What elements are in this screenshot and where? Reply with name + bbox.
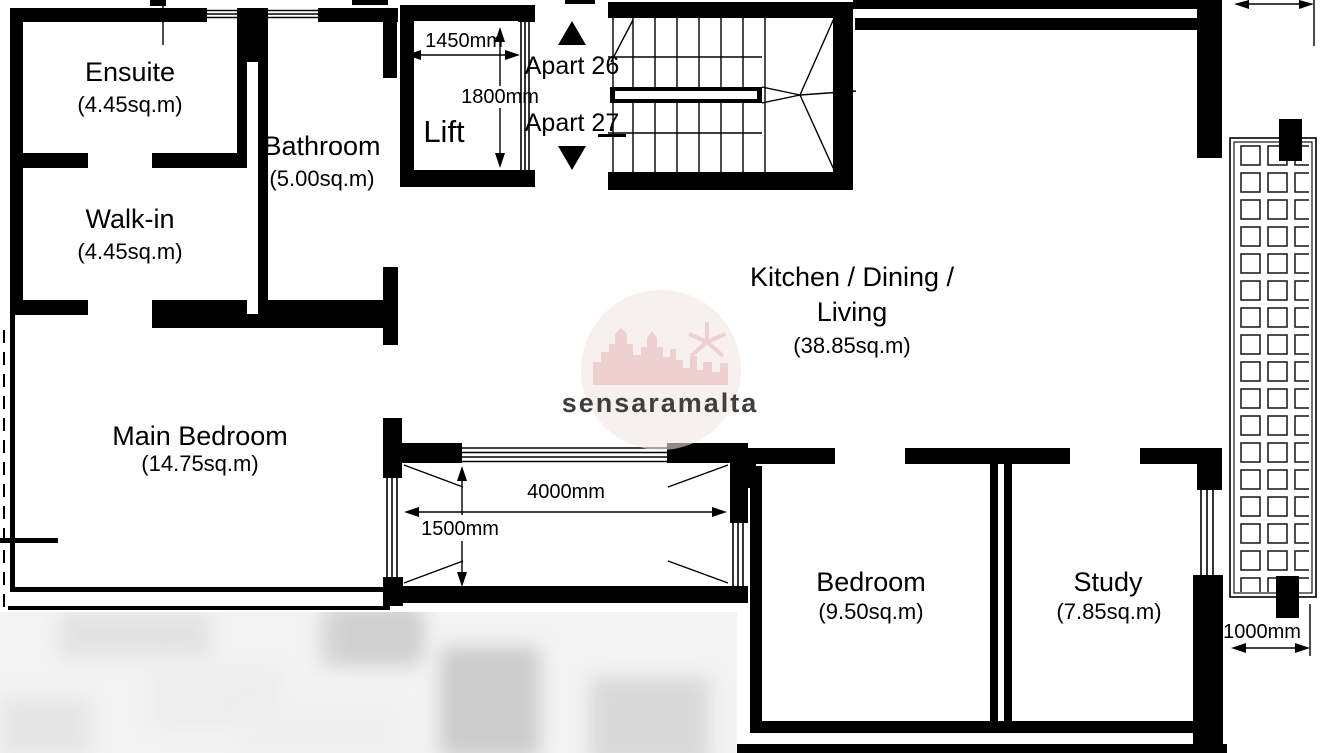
room-label-main-bedroom: Main Bedroom bbox=[112, 421, 288, 451]
window-top-left bbox=[207, 11, 237, 18]
balcony-post-bottom bbox=[1276, 576, 1299, 618]
room-area-bedroom: (9.50sq.m) bbox=[818, 599, 923, 624]
dimension-lift-width: 1450mm bbox=[406, 30, 520, 60]
study-right-window bbox=[1201, 490, 1213, 575]
balcony-post-top bbox=[1279, 119, 1302, 161]
stair-handrail bbox=[610, 87, 800, 103]
apart-27-label: Apart 27 bbox=[525, 109, 620, 137]
dimension-label-balcony-width: 1000mm bbox=[1223, 621, 1301, 643]
room-area-study: (7.85sq.m) bbox=[1056, 599, 1161, 624]
dimension-terrace-depth: 1500mm bbox=[419, 466, 503, 587]
terrace-bedroom-window bbox=[733, 523, 743, 586]
dimension-label-lift-depth: 1800mm bbox=[461, 86, 539, 108]
room-label-kitchen-line2: Living bbox=[817, 297, 888, 327]
room-label-bedroom: Bedroom bbox=[816, 567, 926, 597]
watermark-text: sensaramalta bbox=[562, 388, 759, 418]
room-area-walk-in: (4.45sq.m) bbox=[77, 239, 182, 264]
dimension-label-lift-width: 1450mm bbox=[425, 30, 503, 52]
balcony-tile-grid bbox=[1237, 142, 1309, 592]
staircase bbox=[608, 16, 856, 172]
blurred-region bbox=[0, 612, 737, 753]
apart-27-underline bbox=[598, 134, 626, 137]
dimension-terrace-width: 4000mm bbox=[404, 481, 727, 517]
apart-26-label: Apart 26 bbox=[525, 52, 620, 80]
balcony bbox=[1230, 119, 1316, 618]
down-arrow-icon bbox=[558, 146, 586, 170]
window-bathroom-top bbox=[268, 11, 318, 18]
floor-plan: sensaramalta 1450mm 1800mm 4000mm 1500mm… bbox=[0, 0, 1332, 753]
room-area-main-bedroom: (14.75sq.m) bbox=[141, 451, 258, 476]
room-area-kitchen: (38.85sq.m) bbox=[793, 333, 910, 358]
dimension-label-terrace-depth: 1500mm bbox=[421, 518, 499, 540]
room-label-bathroom: Bathroom bbox=[263, 131, 380, 161]
room-label-lift: Lift bbox=[423, 114, 465, 149]
terrace-left-window bbox=[387, 478, 397, 577]
room-label-ensuite: Ensuite bbox=[85, 57, 175, 87]
up-arrow-icon bbox=[558, 21, 586, 45]
room-label-walk-in: Walk-in bbox=[85, 204, 174, 234]
room-area-ensuite: (4.45sq.m) bbox=[77, 92, 182, 117]
dimension-top-right bbox=[1234, 0, 1314, 46]
room-label-study: Study bbox=[1073, 567, 1143, 597]
room-area-bathroom: (5.00sq.m) bbox=[269, 166, 374, 191]
dimension-label-terrace-width: 4000mm bbox=[527, 481, 605, 503]
watermark-logo: sensaramalta bbox=[562, 290, 759, 450]
terrace-sliding-door bbox=[462, 448, 667, 462]
room-label-kitchen-line1: Kitchen / Dining / bbox=[750, 262, 955, 292]
